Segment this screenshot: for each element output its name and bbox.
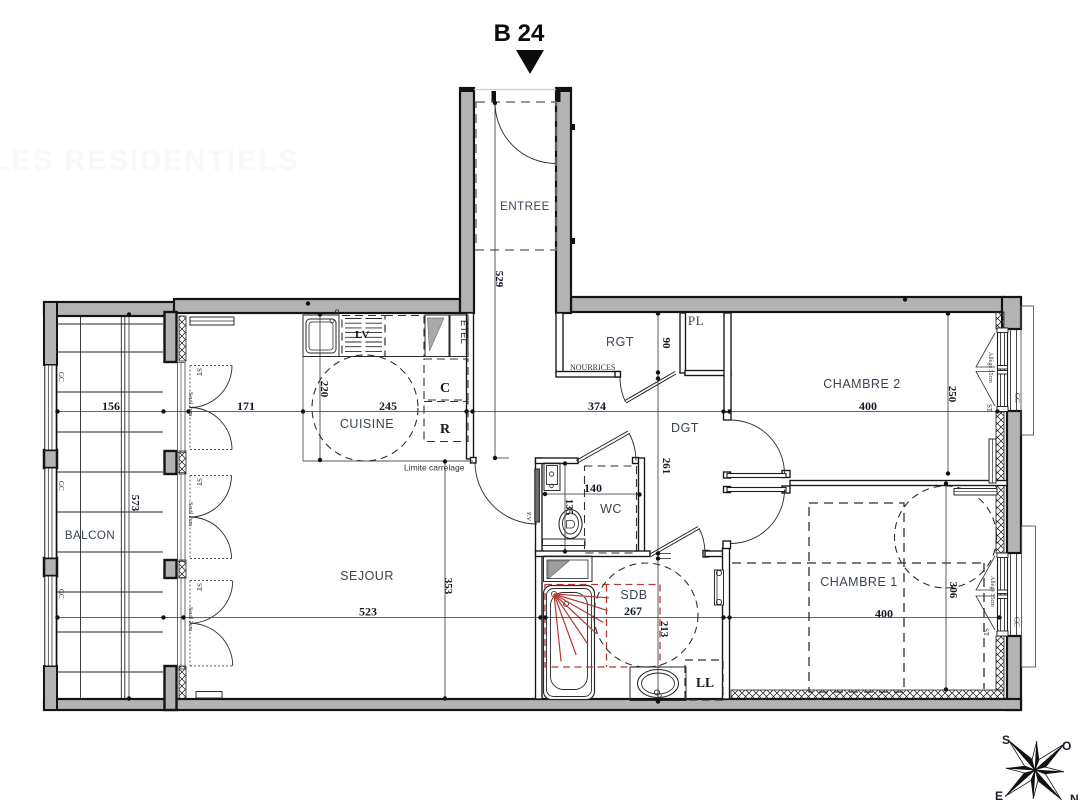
svg-text:400: 400 [875, 607, 893, 621]
svg-text:GC: GC [57, 372, 65, 382]
svg-text:BALCON: BALCON [65, 530, 115, 542]
svg-text:CHAMBRE 1: CHAMBRE 1 [820, 575, 897, 589]
svg-text:N: N [1070, 792, 1079, 800]
svg-text:Seuil 2cm: Seuil 2cm [187, 502, 193, 526]
svg-text:140: 140 [584, 481, 602, 495]
svg-text:LES RESIDENTIELS: LES RESIDENTIELS [0, 145, 300, 177]
svg-text:ETEL: ETEL [458, 320, 469, 344]
svg-text:ST: ST [195, 583, 203, 592]
svg-text:ST: ST [195, 478, 203, 487]
svg-text:RGT: RGT [606, 335, 634, 349]
svg-text:GC: GC [1013, 393, 1021, 403]
svg-text:LL: LL [696, 675, 714, 690]
svg-text:250: 250 [946, 386, 958, 403]
svg-text:PL: PL [688, 313, 704, 328]
svg-text:213: 213 [658, 621, 670, 638]
svg-text:GC: GC [1013, 617, 1021, 627]
svg-text:SEJOUR: SEJOUR [340, 569, 394, 583]
svg-text:GC: GC [57, 589, 65, 599]
svg-text:374: 374 [588, 399, 606, 413]
svg-text:156: 156 [102, 399, 120, 413]
svg-text:ENTREE: ENTREE [500, 201, 550, 213]
svg-text:Allège 35cm: Allège 35cm [989, 576, 995, 607]
svg-text:135: 135 [563, 499, 575, 516]
svg-text:306: 306 [947, 582, 959, 599]
svg-text:353: 353 [442, 578, 454, 595]
svg-text:ST: ST [195, 368, 203, 377]
svg-text:220: 220 [318, 381, 330, 398]
svg-text:400: 400 [859, 399, 877, 413]
svg-text:245: 245 [379, 399, 397, 413]
svg-text:ST: ST [982, 628, 990, 637]
svg-text:WC: WC [600, 502, 622, 516]
svg-text:267: 267 [624, 604, 642, 618]
svg-text:R: R [440, 422, 451, 437]
svg-text:E: E [995, 789, 1003, 800]
svg-text:SDB: SDB [620, 588, 647, 602]
svg-text:ST: ST [985, 404, 993, 413]
svg-text:NOURRICES: NOURRICES [570, 363, 615, 372]
svg-text:CHAMBRE 2: CHAMBRE 2 [823, 377, 900, 391]
svg-text:Allège 35cm: Allège 35cm [987, 352, 993, 383]
svg-text:O: O [1062, 739, 1071, 753]
svg-text:CUISINE: CUISINE [340, 417, 394, 431]
svg-text:Seuil 2cm: Seuil 2cm [187, 392, 193, 416]
svg-text:DGT: DGT [671, 421, 699, 435]
svg-text:529: 529 [493, 271, 505, 288]
svg-text:C: C [440, 381, 450, 396]
svg-text:B 24: B 24 [494, 20, 545, 47]
svg-text:S: S [1002, 733, 1010, 747]
svg-text:Seuil 2cm: Seuil 2cm [187, 607, 193, 631]
svg-text:573: 573 [129, 495, 141, 512]
svg-text:GC: GC [57, 481, 65, 491]
svg-text:171: 171 [237, 399, 255, 413]
svg-text:LV: LV [355, 329, 369, 341]
svg-text:Limite carrelage: Limite carrelage [404, 463, 465, 473]
svg-text:90: 90 [660, 338, 672, 350]
svg-text:523: 523 [359, 605, 377, 619]
svg-text:261: 261 [660, 458, 672, 475]
svg-text:P.V: P.V [525, 512, 532, 522]
